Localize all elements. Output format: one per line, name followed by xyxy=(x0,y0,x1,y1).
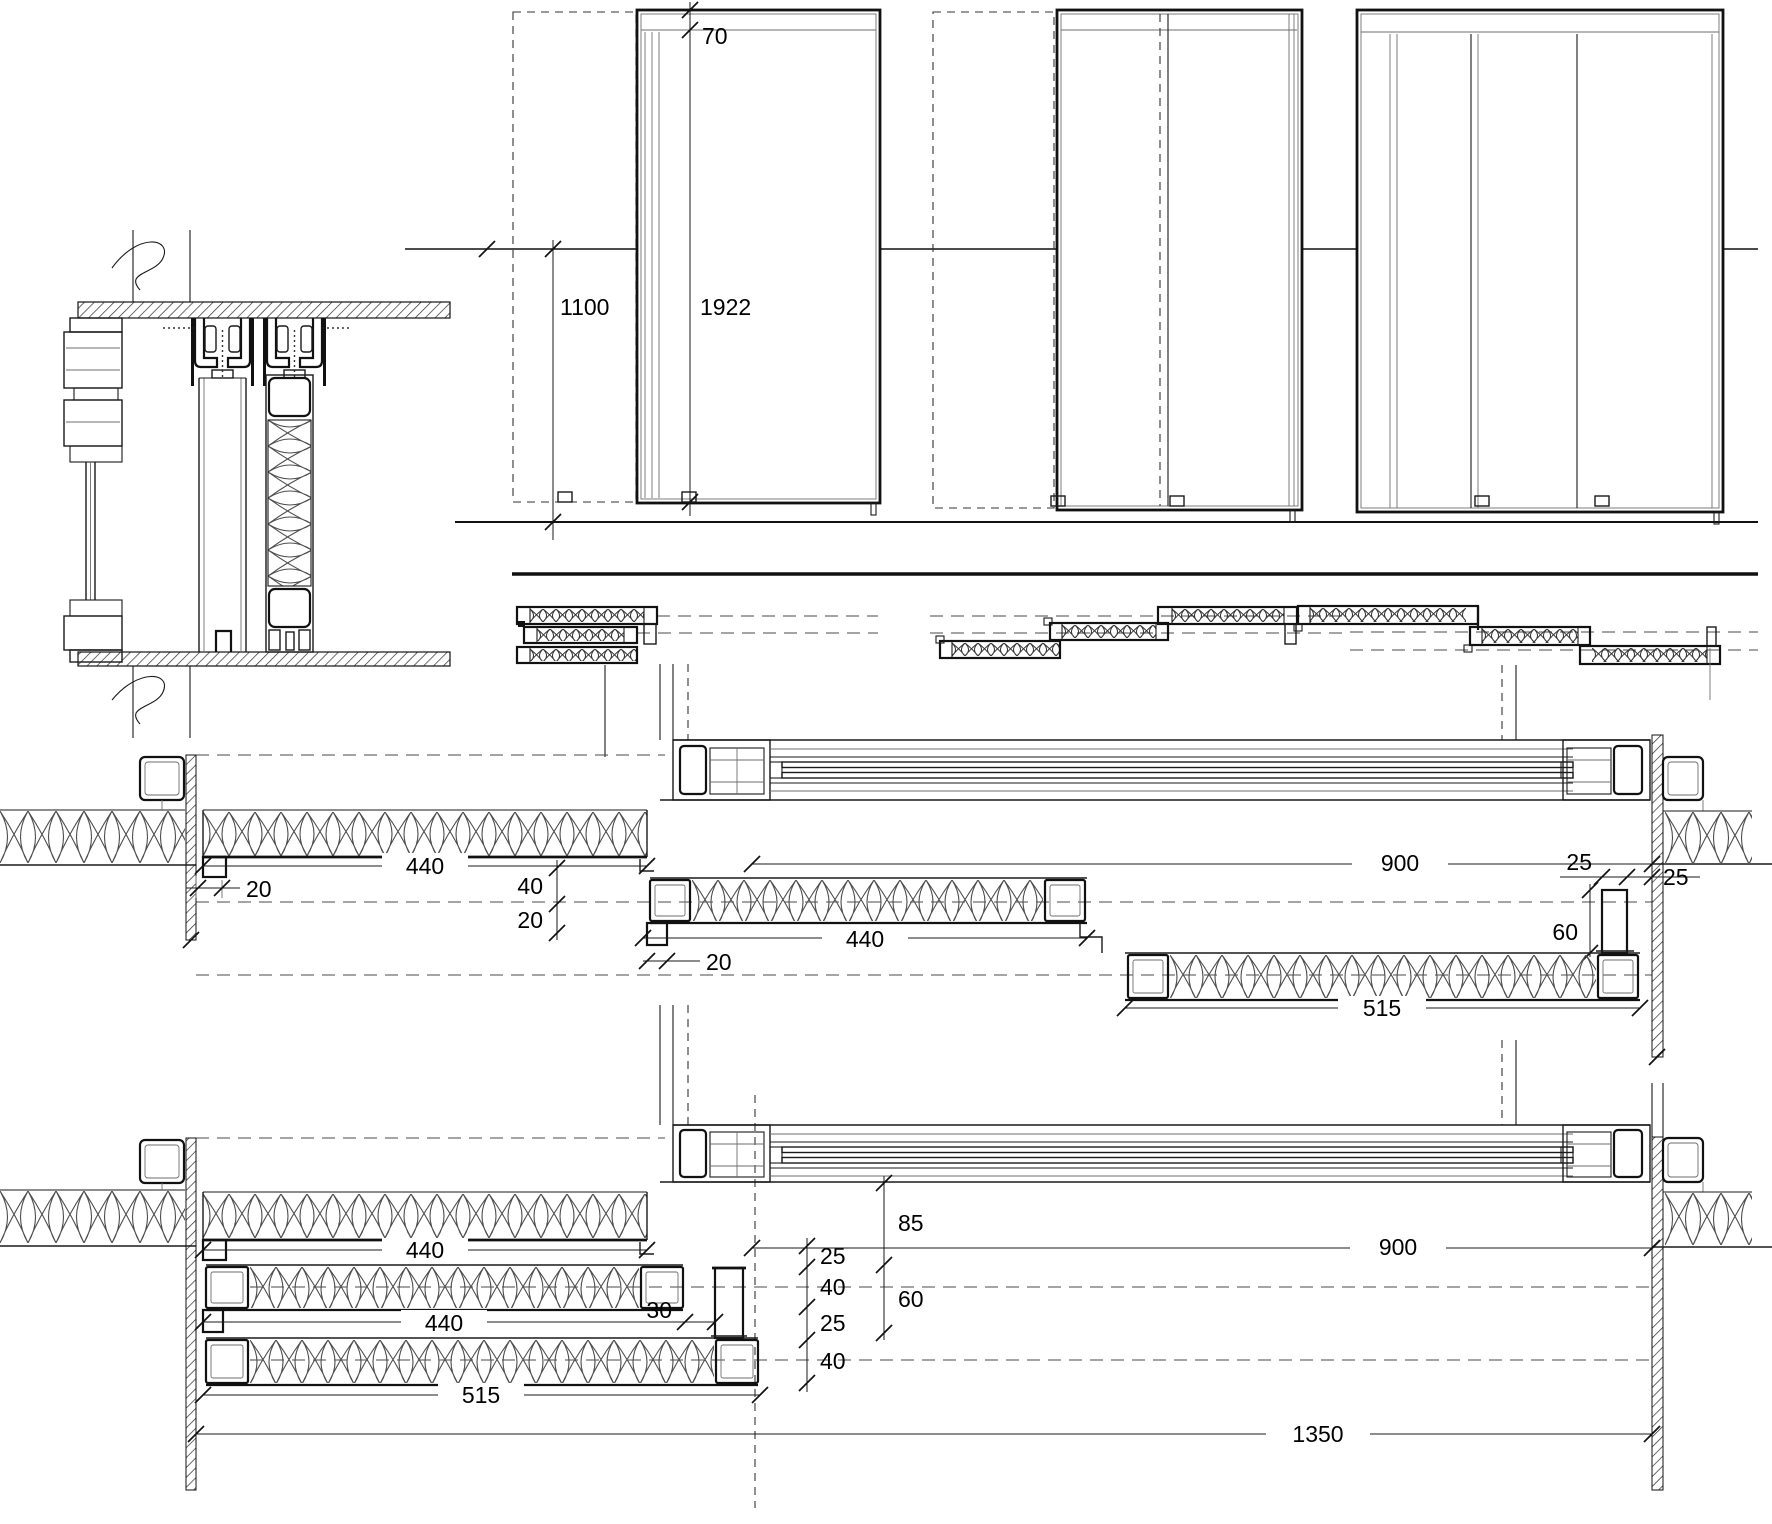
floor-guide xyxy=(216,631,231,652)
plan-position-3 xyxy=(1294,606,1758,664)
glass-pane-section xyxy=(86,462,95,600)
end-profile xyxy=(206,1340,248,1383)
glass-pane xyxy=(782,762,1573,768)
panel-leaf xyxy=(637,10,880,503)
wall-right xyxy=(1652,735,1663,1057)
dim-panel-b: 440 xyxy=(846,926,884,952)
end-profile xyxy=(716,1340,758,1383)
fixed-glazing-plan xyxy=(660,740,1650,800)
sliding-panel-c-plan xyxy=(1125,953,1640,1000)
elevation-position-3 xyxy=(1357,10,1723,524)
guide-profile xyxy=(647,923,667,945)
dim-panel-c: 515 xyxy=(1363,995,1401,1021)
dim-total: 1350 xyxy=(1292,1421,1343,1447)
end-profile xyxy=(1128,955,1168,998)
horizontal-section-staggered: 440 20 40 20 440 20 900 25 25 xyxy=(0,648,1772,1065)
steel-tube-left xyxy=(140,1140,184,1183)
jamb-right xyxy=(1563,1125,1650,1182)
sliding-door-technical-drawing: 70 1100 1922 xyxy=(0,0,1772,1524)
dim-v85: 85 xyxy=(898,1210,924,1236)
plan-views xyxy=(517,606,1758,664)
sliding-leaf-glazed-section xyxy=(199,378,246,652)
guide-profile xyxy=(203,857,226,877)
steel-tube-right xyxy=(1663,757,1703,800)
fixed-glazing-plan xyxy=(660,1125,1650,1182)
drawing-canvas: 70 1100 1922 xyxy=(0,0,1772,1524)
panel-leaves xyxy=(1057,10,1302,510)
dim-stop-h: 60 xyxy=(1552,919,1578,945)
guide-stub xyxy=(1290,510,1295,522)
dim-panel-b: 440 xyxy=(425,1310,463,1336)
plan-position-1 xyxy=(517,607,878,663)
pocket-dashed-outline xyxy=(513,12,636,502)
end-stop-profile xyxy=(715,1268,743,1338)
dim-v40b: 40 xyxy=(820,1348,846,1374)
dim-gap-30: 30 xyxy=(646,1297,672,1323)
floor-guide-mark xyxy=(558,492,572,502)
dim-top-rail: 70 xyxy=(702,23,728,49)
fixed-frame-section xyxy=(64,318,122,662)
dim-offset-b: 20 xyxy=(706,949,732,975)
plan-position-2 xyxy=(930,607,1350,658)
end-hook xyxy=(644,624,656,644)
dim-stop-w: 25 xyxy=(1566,849,1592,875)
steel-tube-right xyxy=(1663,1138,1703,1182)
end-hook xyxy=(1707,627,1716,646)
end-profile xyxy=(1598,955,1638,998)
jamb-right xyxy=(1563,740,1650,800)
roller xyxy=(301,326,312,352)
wall-break-bottom xyxy=(112,666,190,738)
dim-opening: 900 xyxy=(1379,1234,1417,1260)
dim-v20: 20 xyxy=(517,907,543,933)
glass-pane xyxy=(782,1158,1573,1164)
dim-v40a: 40 xyxy=(820,1274,846,1300)
pocket-dashed-outline xyxy=(933,12,1054,508)
vertical-section-detail xyxy=(64,230,450,738)
glass-pane xyxy=(782,773,1573,779)
wall-break-top xyxy=(112,230,190,302)
floor-slab xyxy=(78,652,450,666)
roller xyxy=(229,326,240,352)
end-profile xyxy=(206,1267,248,1308)
dim-v25a: 25 xyxy=(820,1243,846,1269)
guide-stub xyxy=(871,503,876,515)
dim-v25b: 25 xyxy=(820,1310,846,1336)
dim-v60: 60 xyxy=(898,1286,924,1312)
dim-panel-a: 440 xyxy=(406,853,444,879)
stacked-panel-c-plan xyxy=(206,1338,758,1385)
end-profile xyxy=(650,880,690,921)
end-stop-profile xyxy=(1602,890,1627,953)
jamb-left xyxy=(673,740,770,800)
sliding-track-a xyxy=(195,318,250,378)
dim-v40: 40 xyxy=(517,873,543,899)
dim-stop-gap: 25 xyxy=(1663,864,1689,890)
steel-tube-left xyxy=(140,757,184,800)
ceiling-slab xyxy=(78,302,450,318)
wall-left xyxy=(186,1138,196,1490)
sliding-track-b xyxy=(267,318,322,378)
elevation-position-1: 70 1100 1922 xyxy=(479,2,880,540)
dim-opening: 900 xyxy=(1381,850,1419,876)
panel-leaves xyxy=(1357,10,1723,512)
roller xyxy=(205,326,216,352)
glass-pane xyxy=(782,1147,1573,1153)
guide-profile xyxy=(203,1310,223,1332)
dim-pocket-height: 1100 xyxy=(560,294,609,320)
wall-left xyxy=(186,755,196,940)
end-profile xyxy=(1045,880,1085,921)
elevations: 70 1100 1922 xyxy=(405,2,1758,574)
elevation-position-2 xyxy=(933,10,1302,522)
dim-panel-c: 515 xyxy=(462,1382,500,1408)
wall-right xyxy=(1652,1137,1663,1490)
dim-offset-a: 20 xyxy=(246,876,272,902)
sliding-leaf-insulated-section xyxy=(266,375,313,652)
horizontal-section-stacked: 440 440 30 515 25 40 25 40 85 60 xyxy=(0,1005,1772,1508)
roller xyxy=(277,326,288,352)
dim-panel-a: 440 xyxy=(406,1237,444,1263)
dim-panel-height: 1922 xyxy=(700,294,751,320)
